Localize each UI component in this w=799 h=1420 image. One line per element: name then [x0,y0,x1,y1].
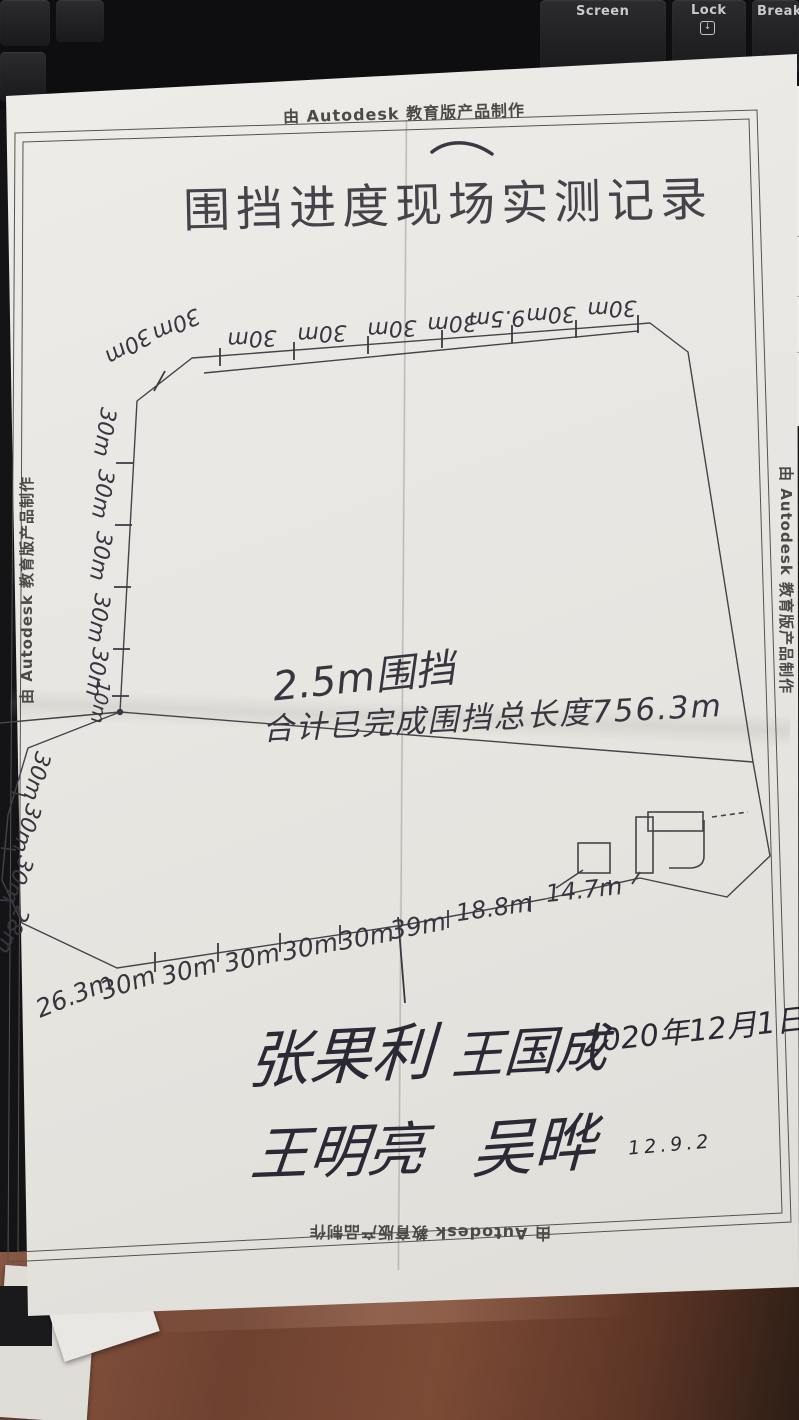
photo-of-site-measurement-document: Screen Lock Break ↓ 注 向 [0,0,799,1420]
measurement-label: 30m [526,301,576,328]
measurement-label: 9.5m [468,305,525,332]
signature-3: 王明亮 [248,1102,431,1192]
page-title: 围挡进度现场实测记录 [182,160,713,241]
measurement-label: 30m [227,324,278,352]
signature-4: 吴晔 [471,1091,598,1190]
signature-1: 张果利 [246,1001,436,1101]
autodesk-credit-right: 由 Autodesk 教育版产品制作 [776,466,797,694]
autodesk-credit-left: 由 Autodesk 教育版产品制作 [16,476,37,704]
autodesk-credit-bottom: 由 Autodesk 教育版产品制作 [309,1221,551,1247]
measurement-label: 30m [367,314,418,342]
measurement-label: 30m [587,295,637,322]
measurement-label: 30m [297,319,348,347]
